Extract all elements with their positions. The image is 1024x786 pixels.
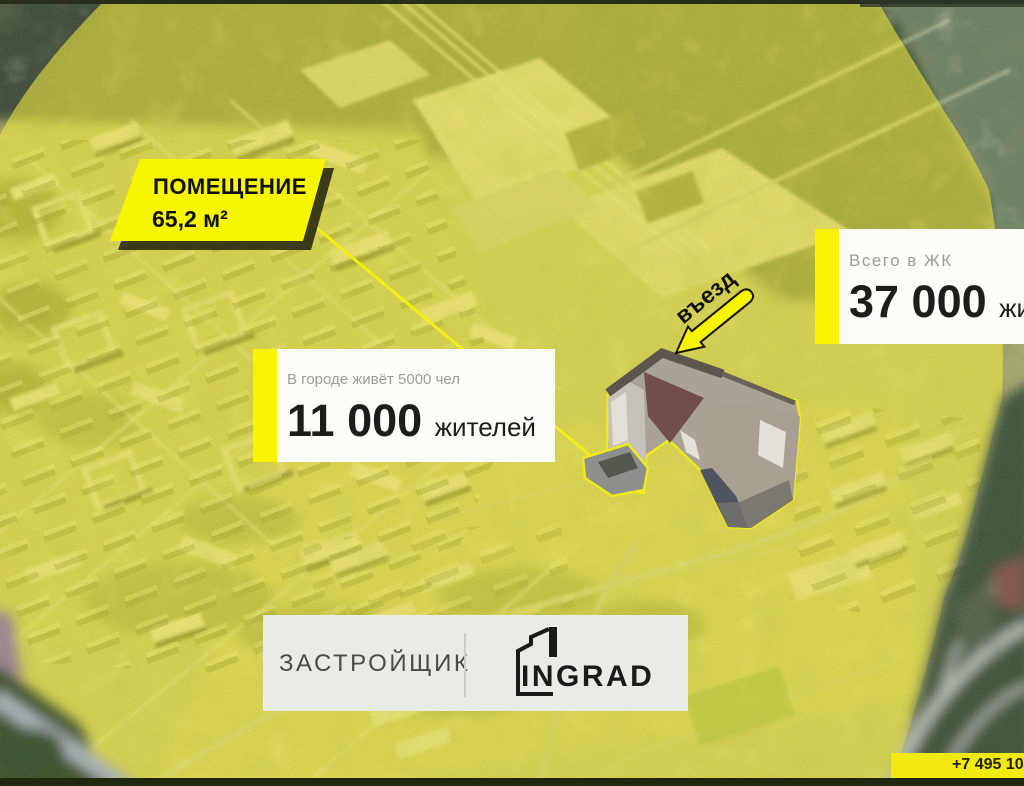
svg-text:INGRAD: INGRAD	[521, 660, 654, 693]
